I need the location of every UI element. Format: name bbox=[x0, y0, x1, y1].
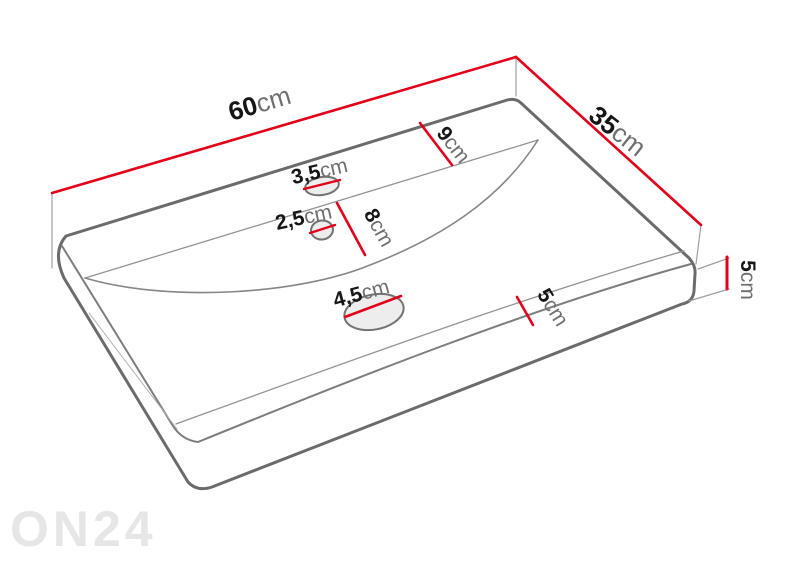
dim-label-width-60cm: 60cm bbox=[225, 80, 294, 127]
washbasin-dimension-diagram: 60cm 35cm 9cm 8cm 3,5cm 2,5cm 4,5cm 5cm … bbox=[0, 0, 792, 566]
dim-label-edge-height-5cm: 5cm bbox=[736, 260, 759, 300]
dim-label-depth-35cm: 35cm bbox=[583, 100, 652, 163]
washbasin-drawing-svg: 60cm 35cm 9cm 8cm 3,5cm 2,5cm 4,5cm 5cm … bbox=[0, 0, 792, 566]
extension-line-edge-top bbox=[698, 258, 729, 269]
on24-watermark: ON24 bbox=[10, 501, 157, 557]
extension-line-right-corner bbox=[696, 225, 701, 264]
